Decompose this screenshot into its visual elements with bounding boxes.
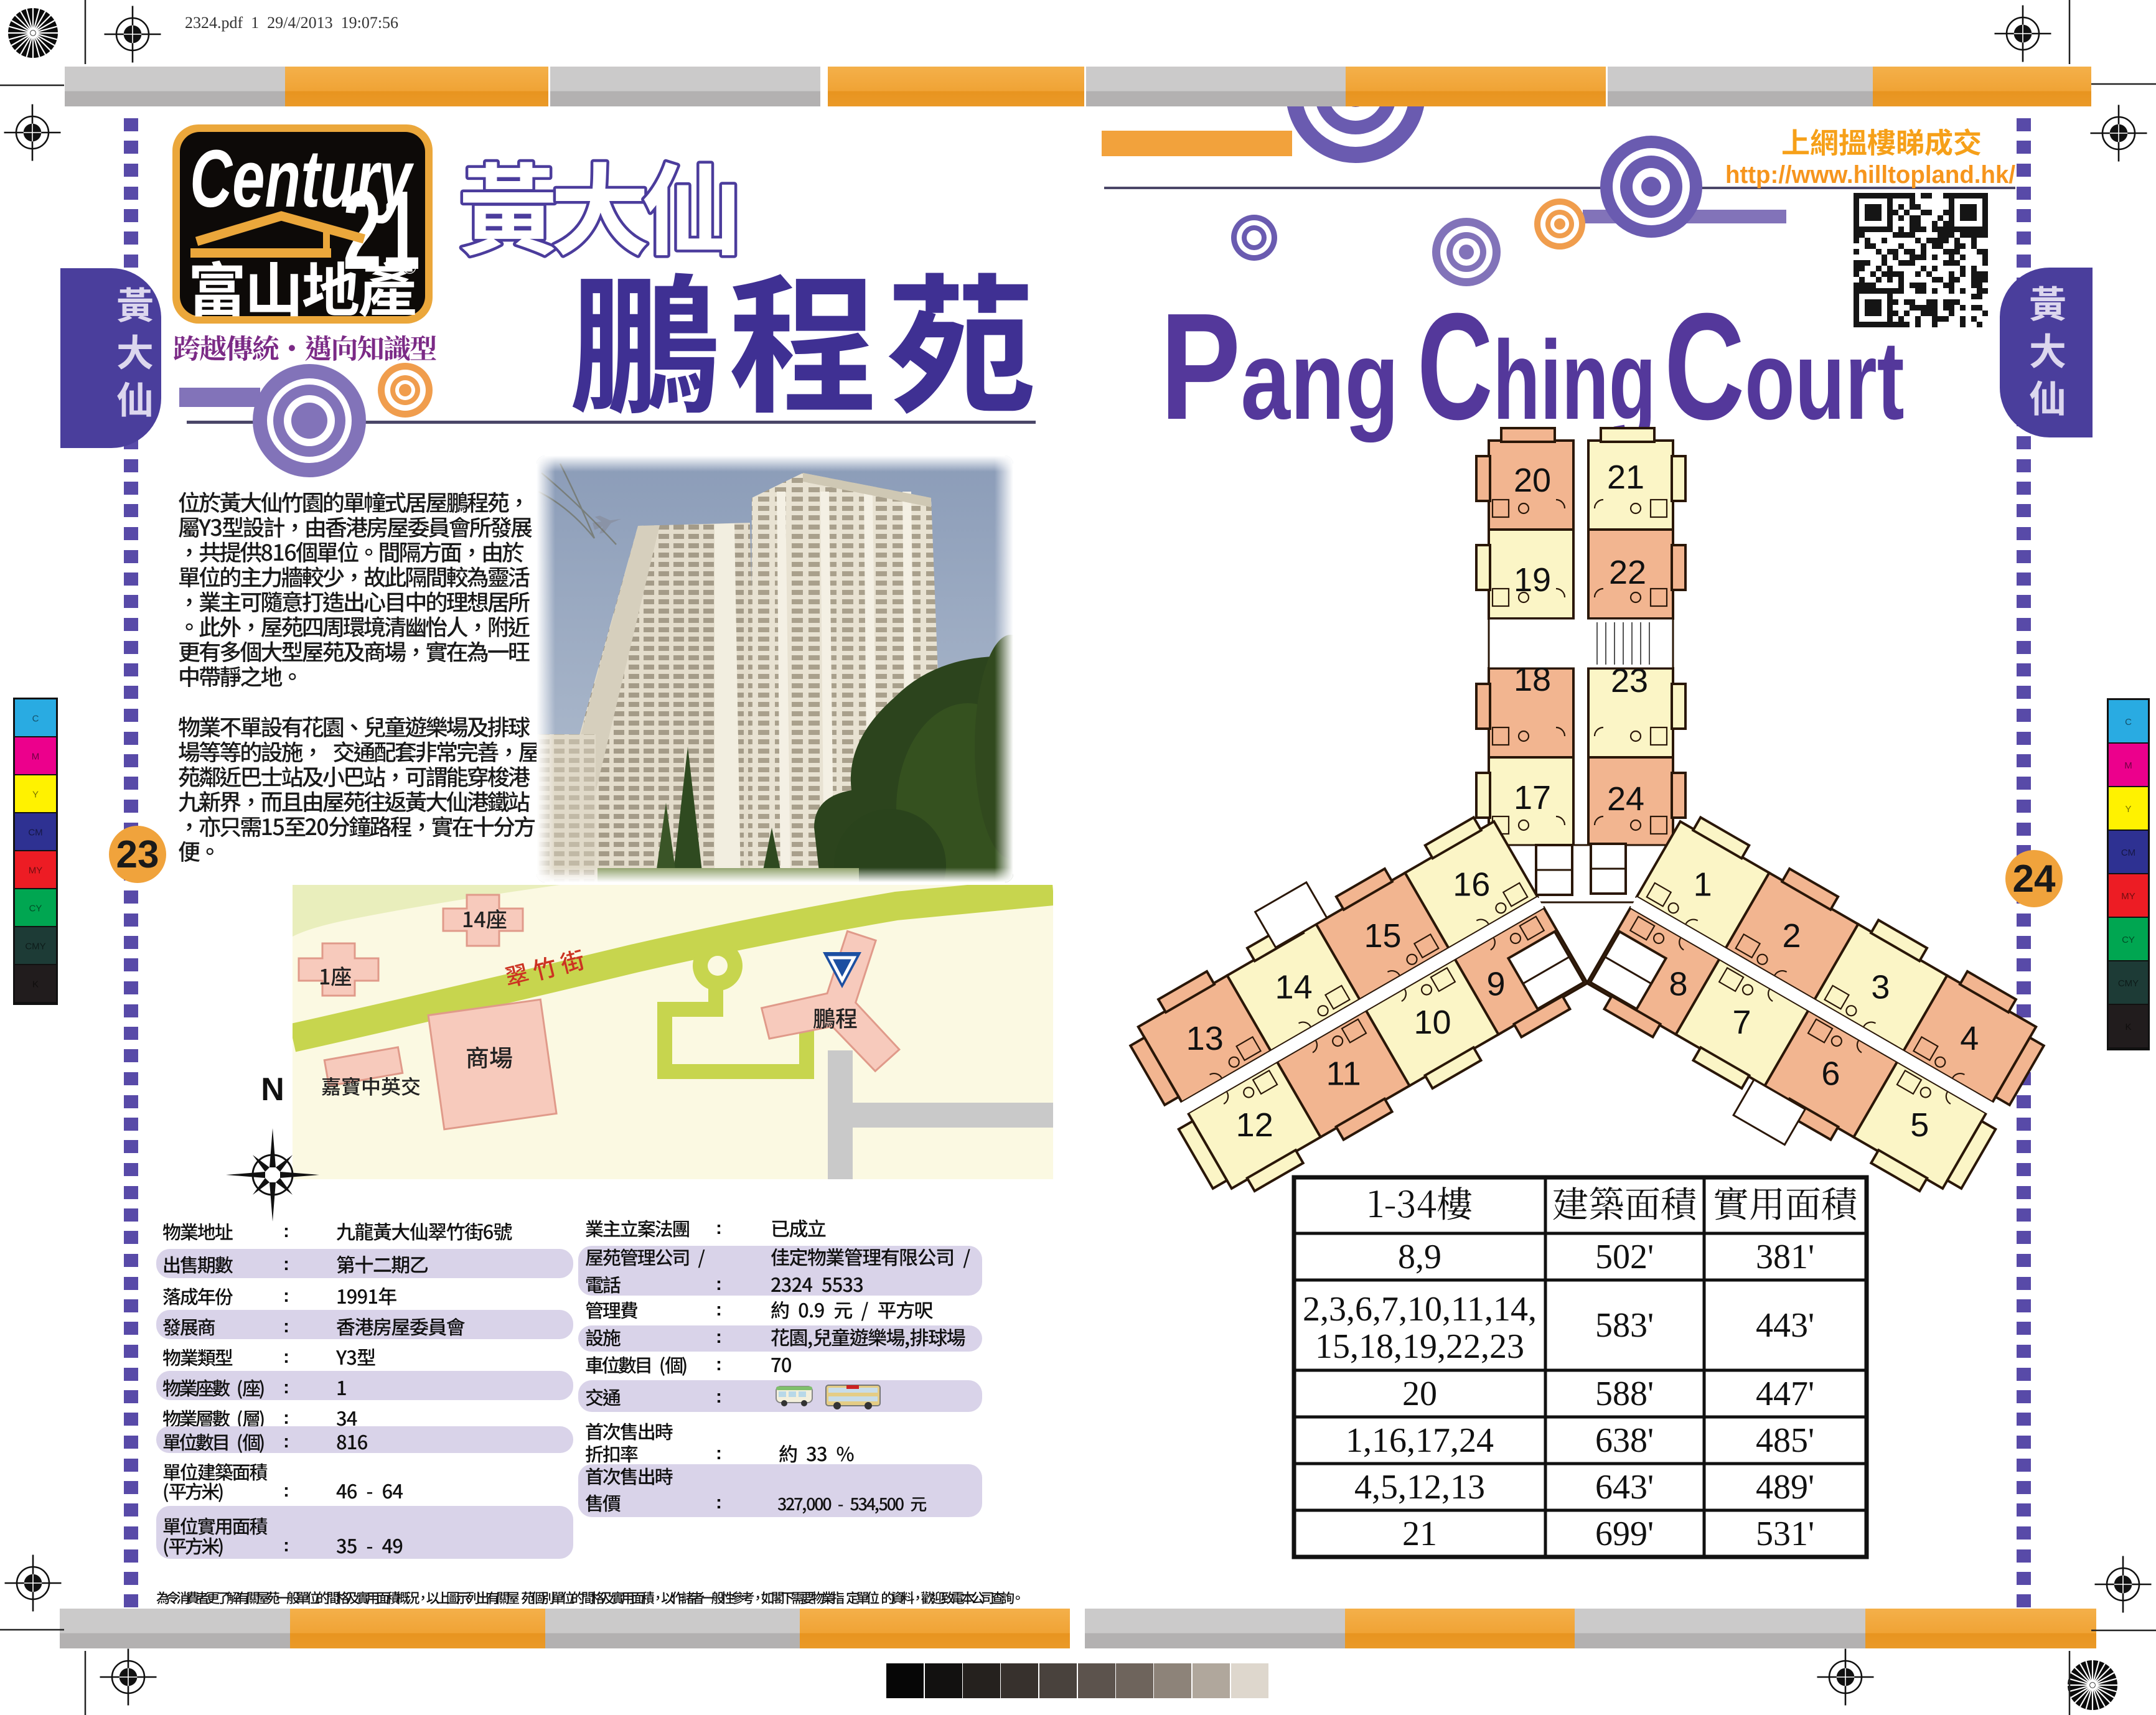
svg-text:N: N xyxy=(261,1072,284,1108)
svg-text:1: 1 xyxy=(1694,866,1712,904)
svg-text:1,16,17,24: 1,16,17,24 xyxy=(1346,1421,1494,1460)
svg-text:381': 381' xyxy=(1756,1238,1814,1276)
svg-text:21: 21 xyxy=(1607,459,1644,496)
svg-text:C: C xyxy=(32,714,39,724)
svg-text::: : xyxy=(716,1492,722,1513)
svg-text::: : xyxy=(283,1408,289,1428)
svg-text:15: 15 xyxy=(1364,917,1401,955)
svg-text:643': 643' xyxy=(1595,1468,1654,1507)
svg-text:6: 6 xyxy=(1821,1055,1840,1092)
svg-text::: : xyxy=(283,1347,289,1367)
svg-text:15,18,19,22,23: 15,18,19,22,23 xyxy=(1315,1327,1524,1366)
svg-text:M: M xyxy=(32,752,40,762)
svg-text::: : xyxy=(716,1443,722,1464)
svg-text:CY: CY xyxy=(2122,935,2135,945)
svg-text:3: 3 xyxy=(1871,969,1890,1006)
svg-text:24: 24 xyxy=(2013,857,2056,900)
svg-text:22: 22 xyxy=(1609,554,1646,591)
svg-text:583': 583' xyxy=(1595,1306,1654,1345)
svg-text::: : xyxy=(283,1480,289,1501)
svg-text:http://www.hilltopland.hk/: http://www.hilltopland.hk/ xyxy=(1725,161,2015,189)
svg-text:502': 502' xyxy=(1595,1238,1654,1276)
svg-text:489': 489' xyxy=(1756,1468,1814,1507)
svg-text:2324.pdf 1 29/4/2013 19:07:: 2324.pdf 1 29/4/2013 19:07:56 xyxy=(185,14,398,32)
svg-text:M: M xyxy=(2124,760,2132,771)
svg-text:11: 11 xyxy=(1326,1055,1361,1092)
svg-text:12: 12 xyxy=(1236,1106,1273,1144)
svg-text:7: 7 xyxy=(1732,1004,1751,1041)
svg-text:18: 18 xyxy=(1514,661,1551,698)
svg-text:14: 14 xyxy=(1275,969,1313,1006)
svg-text:8: 8 xyxy=(1669,966,1687,1003)
svg-text::: : xyxy=(283,1431,289,1452)
svg-text:19: 19 xyxy=(1514,561,1551,599)
svg-text:CM: CM xyxy=(2121,848,2135,858)
svg-text:5: 5 xyxy=(1910,1106,1929,1144)
svg-text:13: 13 xyxy=(1186,1020,1224,1057)
svg-text:K: K xyxy=(32,979,39,990)
svg-text::: : xyxy=(716,1327,722,1347)
svg-text:485': 485' xyxy=(1756,1421,1814,1460)
svg-text:4: 4 xyxy=(1960,1020,1979,1057)
svg-text:CMY: CMY xyxy=(25,942,45,952)
svg-text:4,5,12,13: 4,5,12,13 xyxy=(1354,1468,1485,1507)
svg-text:K: K xyxy=(2125,1022,2131,1032)
svg-text::: : xyxy=(716,1386,722,1407)
svg-text:Pang: Pang xyxy=(1160,281,1399,451)
svg-text:MY: MY xyxy=(2121,891,2135,902)
svg-text:23: 23 xyxy=(1611,662,1648,699)
svg-text::: : xyxy=(283,1535,289,1556)
svg-text:8,9: 8,9 xyxy=(1398,1238,1441,1276)
svg-text::: : xyxy=(283,1286,289,1306)
svg-text:C: C xyxy=(2125,717,2132,727)
svg-text:443': 443' xyxy=(1756,1306,1814,1345)
svg-text:24: 24 xyxy=(1607,780,1644,818)
svg-text:MY: MY xyxy=(29,866,43,876)
svg-text:10: 10 xyxy=(1413,1004,1451,1041)
svg-text:CMY: CMY xyxy=(2118,978,2139,989)
svg-text::: : xyxy=(283,1254,289,1274)
svg-text:21: 21 xyxy=(1402,1515,1437,1553)
svg-text::: : xyxy=(716,1299,722,1320)
svg-text:699': 699' xyxy=(1595,1515,1654,1553)
svg-text::: : xyxy=(283,1377,289,1398)
svg-text:588': 588' xyxy=(1595,1375,1654,1413)
svg-text:Y: Y xyxy=(32,790,39,800)
svg-text::: : xyxy=(716,1218,722,1238)
svg-text:9: 9 xyxy=(1486,966,1505,1003)
svg-text:2,3,6,7,10,11,14,: 2,3,6,7,10,11,14, xyxy=(1303,1290,1537,1329)
svg-text:17: 17 xyxy=(1514,779,1551,816)
svg-text:20: 20 xyxy=(1402,1375,1437,1413)
svg-text:531': 531' xyxy=(1756,1515,1814,1553)
svg-text:638': 638' xyxy=(1595,1421,1654,1460)
svg-text:23: 23 xyxy=(116,833,159,876)
svg-text:20: 20 xyxy=(1514,462,1551,499)
svg-text:Y: Y xyxy=(2125,804,2131,815)
svg-text::: : xyxy=(283,1221,289,1241)
svg-text:CM: CM xyxy=(28,828,42,838)
svg-text::: : xyxy=(716,1354,722,1375)
svg-text:16: 16 xyxy=(1453,866,1490,904)
svg-text:CY: CY xyxy=(29,904,42,914)
svg-text:447': 447' xyxy=(1756,1375,1814,1413)
svg-text:Ching: Ching xyxy=(1417,282,1656,451)
svg-text::: : xyxy=(716,1274,722,1294)
svg-text::: : xyxy=(283,1316,289,1337)
svg-text:2: 2 xyxy=(1782,917,1801,955)
